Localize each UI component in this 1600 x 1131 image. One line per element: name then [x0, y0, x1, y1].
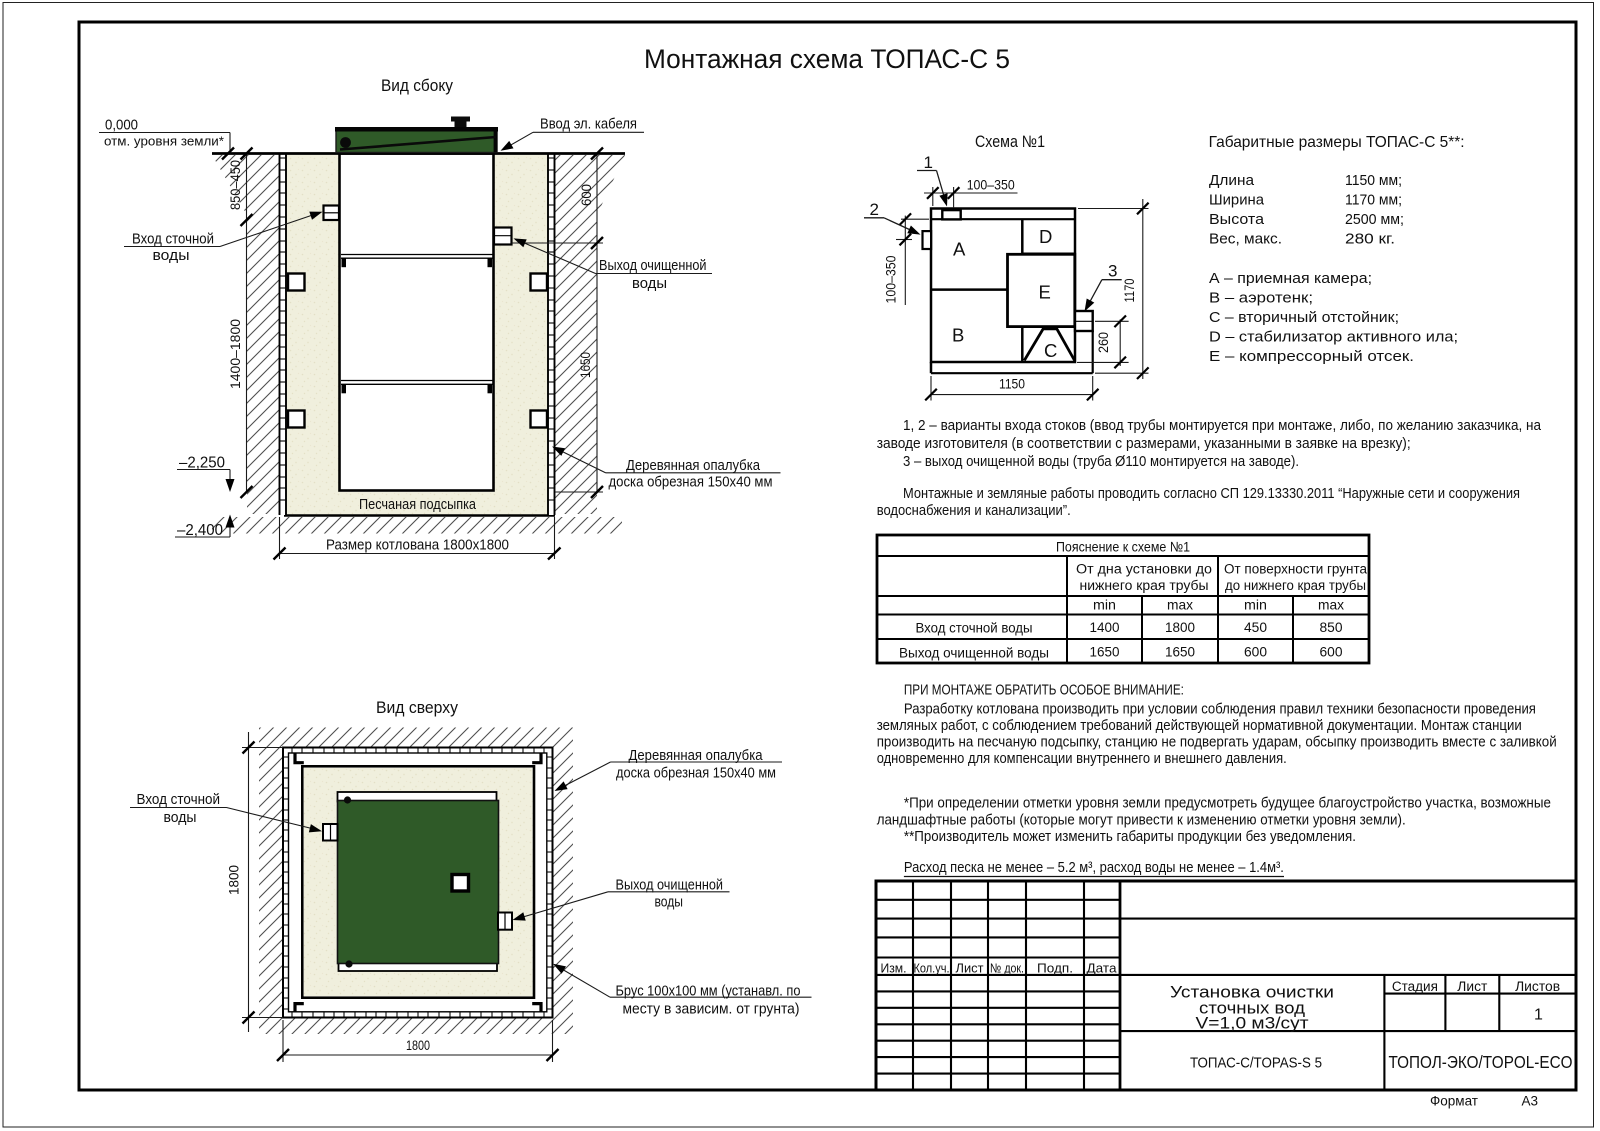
svg-text:водоснабжения и канализации”.: водоснабжения и канализации”.	[877, 502, 1071, 519]
svg-text:1170 мм;: 1170 мм;	[1345, 192, 1402, 209]
svg-text:1650: 1650	[1090, 644, 1120, 660]
svg-text:воды: воды	[164, 810, 197, 826]
svg-text:Вид сверху: Вид сверху	[376, 698, 458, 717]
svg-text:1650: 1650	[578, 352, 593, 378]
svg-text:воды: воды	[632, 276, 667, 292]
svg-text:ТОПОЛ-ЭКО/TOPOL-ECO: ТОПОЛ-ЭКО/TOPOL-ECO	[1389, 1052, 1573, 1072]
svg-text:В – аэротенк;: В – аэротенк;	[1209, 290, 1313, 307]
svg-text:ТОПАС-С/TOPAS-S 5: ТОПАС-С/TOPAS-S 5	[1190, 1056, 1322, 1072]
svg-text:100–350: 100–350	[967, 177, 1015, 193]
svg-text:B: B	[952, 325, 964, 346]
svg-text:От дна установки до: От дна установки до	[1076, 562, 1212, 577]
svg-text:600: 600	[1320, 644, 1343, 660]
svg-text:Выход очищенной: Выход очищенной	[599, 258, 707, 274]
svg-text:850: 850	[1320, 619, 1343, 635]
svg-text:производить на песчаную подсып: производить на песчаную подсыпку, станци…	[877, 734, 1557, 751]
svg-text:отм. уровня земли*: отм. уровня земли*	[104, 135, 224, 149]
svg-text:С – вторичный отстойник;: С – вторичный отстойник;	[1209, 309, 1399, 326]
svg-text:min: min	[1093, 597, 1116, 613]
svg-text:Размер котлована 1800х1800: Размер котлована 1800х1800	[326, 538, 509, 554]
svg-text:max: max	[1167, 597, 1193, 613]
svg-text:Дата: Дата	[1087, 961, 1118, 976]
svg-text:–2,250: –2,250	[179, 455, 225, 472]
svg-text:воды: воды	[655, 895, 684, 911]
svg-text:Монтажная схема ТОПАС-С 5: Монтажная схема ТОПАС-С 5	[644, 44, 1010, 74]
svg-text:3: 3	[1108, 262, 1117, 281]
svg-text:280 кг.: 280 кг.	[1345, 231, 1395, 248]
svg-text:A: A	[953, 239, 966, 260]
svg-text:Формат: Формат	[1430, 1094, 1478, 1109]
svg-text:нижнего края трубы: нижнего края трубы	[1080, 578, 1209, 593]
svg-text:Высота: Высота	[1209, 211, 1265, 228]
svg-text:C: C	[1044, 340, 1057, 361]
svg-text:Ввод эл. кабеля: Ввод эл. кабеля	[540, 116, 637, 132]
svg-text:одновременно для компенсации в: одновременно для компенсации внутреннего…	[877, 750, 1287, 767]
svg-text:Выход очищенной воды: Выход очищенной воды	[899, 645, 1049, 661]
svg-text:Ширина: Ширина	[1209, 192, 1265, 209]
svg-text:месту в зависим. от грунта): месту в зависим. от грунта)	[623, 1002, 800, 1018]
svg-text:воды: воды	[153, 248, 190, 264]
svg-text:до нижнего края трубы: до нижнего края трубы	[1225, 578, 1366, 593]
svg-text:600: 600	[1244, 644, 1267, 660]
svg-text:Деревянная опалубка: Деревянная опалубка	[626, 458, 761, 474]
svg-text:Вид сбоку: Вид сбоку	[381, 76, 453, 95]
svg-text:Подп.: Подп.	[1037, 961, 1073, 976]
svg-text:Длина: Длина	[1209, 172, 1255, 189]
svg-text:450: 450	[1244, 619, 1267, 635]
svg-text:Лист: Лист	[1457, 979, 1487, 994]
svg-text:1800: 1800	[406, 1037, 430, 1053]
svg-text:max: max	[1318, 597, 1344, 613]
svg-text:2500 мм;: 2500 мм;	[1345, 211, 1404, 228]
svg-text:1800: 1800	[1165, 619, 1195, 635]
svg-text:E: E	[1039, 282, 1051, 303]
svg-text:Выход очищенной: Выход очищенной	[616, 878, 724, 894]
svg-text:1, 2 – варианты входа стоков: 1, 2 – варианты входа стоков (ввод трубы…	[903, 417, 1542, 434]
svg-text:Схема №1: Схема №1	[975, 133, 1045, 151]
svg-text:**Производитель может изменить: **Производитель может изменить габариты …	[904, 828, 1356, 845]
svg-text:1: 1	[924, 153, 933, 172]
svg-text:А – приемная камера;: А – приемная камера;	[1209, 270, 1372, 287]
svg-text:min: min	[1244, 597, 1267, 613]
svg-text:3 – выход очищенной воды (труб: 3 – выход очищенной воды (труба Ø110 мон…	[903, 453, 1299, 470]
svg-text:*При определении отметки уровн: *При определении отметки уровня земли пр…	[904, 795, 1551, 812]
svg-text:1800: 1800	[227, 865, 242, 895]
svg-text:доска обрезная 150х40 мм: доска обрезная 150х40 мм	[616, 766, 776, 782]
svg-text:850–450: 850–450	[228, 160, 243, 210]
svg-text:доска обрезная 150х40 мм: доска обрезная 150х40 мм	[609, 475, 773, 491]
svg-text:Монтажные и земляные работы пр: Монтажные и земляные работы проводить со…	[903, 485, 1520, 502]
svg-text:Расход песка не менее – 5.2 м³: Расход песка не менее – 5.2 м³, расход в…	[904, 859, 1284, 876]
svg-text:100–350: 100–350	[884, 256, 899, 304]
svg-text:1150 мм;: 1150 мм;	[1345, 172, 1402, 189]
svg-text:земляных работ, с соблюдением: земляных работ, с соблюдением требований…	[877, 717, 1522, 734]
svg-text:1170: 1170	[1122, 279, 1137, 303]
svg-text:2: 2	[870, 200, 879, 219]
svg-text:Вход сточной воды: Вход сточной воды	[916, 620, 1033, 636]
svg-text:0,000: 0,000	[105, 117, 138, 134]
svg-text:Изм.: Изм.	[881, 961, 907, 976]
svg-text:№ док.: № док.	[990, 961, 1024, 976]
svg-text:Вход сточной: Вход сточной	[132, 232, 214, 248]
svg-text:Разработку котлована производи: Разработку котлована производить при усл…	[904, 701, 1536, 718]
svg-text:Стадия: Стадия	[1392, 979, 1438, 994]
svg-text:Кол.уч.: Кол.уч.	[914, 961, 950, 976]
svg-text:Пояснение к схеме №1: Пояснение к схеме №1	[1056, 539, 1190, 555]
svg-text:V=1,0 м3/сут: V=1,0 м3/сут	[1196, 1014, 1309, 1033]
svg-text:260: 260	[1096, 332, 1111, 353]
svg-text:ландшафтные работы (которые мо: ландшафтные работы (которые могут привес…	[877, 812, 1406, 829]
svg-text:Габаритные размеры ТОПАС-С 5**: Габаритные размеры ТОПАС-С 5**:	[1209, 134, 1465, 151]
svg-text:Вес, макс.: Вес, макс.	[1209, 231, 1282, 248]
svg-text:Лист: Лист	[956, 961, 984, 976]
svg-text:1: 1	[1534, 1007, 1543, 1024]
svg-text:600: 600	[579, 184, 594, 206]
svg-text:заводе изготовителя (в соответ: заводе изготовителя (в соответствии с ра…	[877, 435, 1411, 452]
svg-text:–2,400: –2,400	[177, 522, 223, 539]
svg-text:1400: 1400	[1090, 619, 1120, 635]
svg-text:1400–1800: 1400–1800	[228, 319, 243, 389]
svg-text:Е – компрессорный отсек.: Е – компрессорный отсек.	[1209, 348, 1414, 365]
svg-text:Листов: Листов	[1515, 979, 1560, 994]
svg-text:D: D	[1039, 226, 1052, 247]
svg-text:1650: 1650	[1165, 644, 1195, 660]
svg-text:А3: А3	[1522, 1094, 1539, 1109]
svg-text:От поверхности грунта: От поверхности грунта	[1224, 562, 1367, 577]
svg-text:Вход сточной: Вход сточной	[137, 792, 221, 808]
svg-text:ПРИ МОНТАЖЕ ОБРАТИТЬ ОСОБОЕ ВН: ПРИ МОНТАЖЕ ОБРАТИТЬ ОСОБОЕ ВНИМАНИЕ:	[904, 682, 1184, 699]
svg-text:Песчаная подсыпка: Песчаная подсыпка	[359, 497, 477, 513]
svg-text:D – стабилизатор активного ила: D – стабилизатор активного ила;	[1209, 329, 1458, 346]
svg-text:1150: 1150	[999, 376, 1025, 392]
